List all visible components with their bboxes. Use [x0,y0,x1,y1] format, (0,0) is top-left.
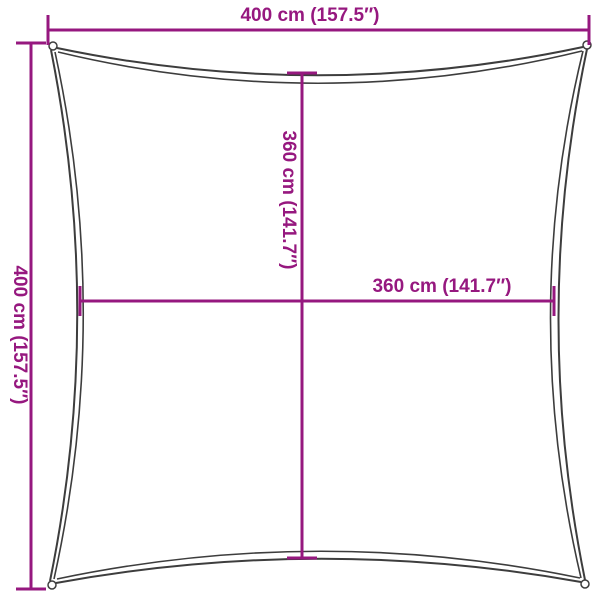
dimension-lines [16,15,589,589]
sail-outline [48,41,591,589]
dimension-label-left: 400 cm (157.5″) [8,265,30,404]
sail-edge-bottom-outer [56,559,581,583]
corner-ring-bottom-left [48,581,56,589]
diagram-canvas: 400 cm (157.5″) 400 cm (157.5″) 360 cm (… [0,0,600,600]
sail-edge-right-outer [558,49,587,580]
dimension-label-inner-horizontal: 360 cm (141.7″) [372,276,511,298]
dimension-label-top: 400 cm (157.5″) [240,5,379,27]
shade-sail-dimension-diagram [0,0,600,600]
corner-ring-top-left [49,42,57,50]
corner-ring-bottom-right [581,580,589,588]
sail-edge-bottom-inner [57,551,580,579]
sail-edge-left-outer [50,50,77,581]
sail-edge-top-outer [57,47,583,75]
dimension-label-inner-vertical: 360 cm (141.7″) [277,130,299,269]
sail-edge-top-inner [58,51,582,83]
